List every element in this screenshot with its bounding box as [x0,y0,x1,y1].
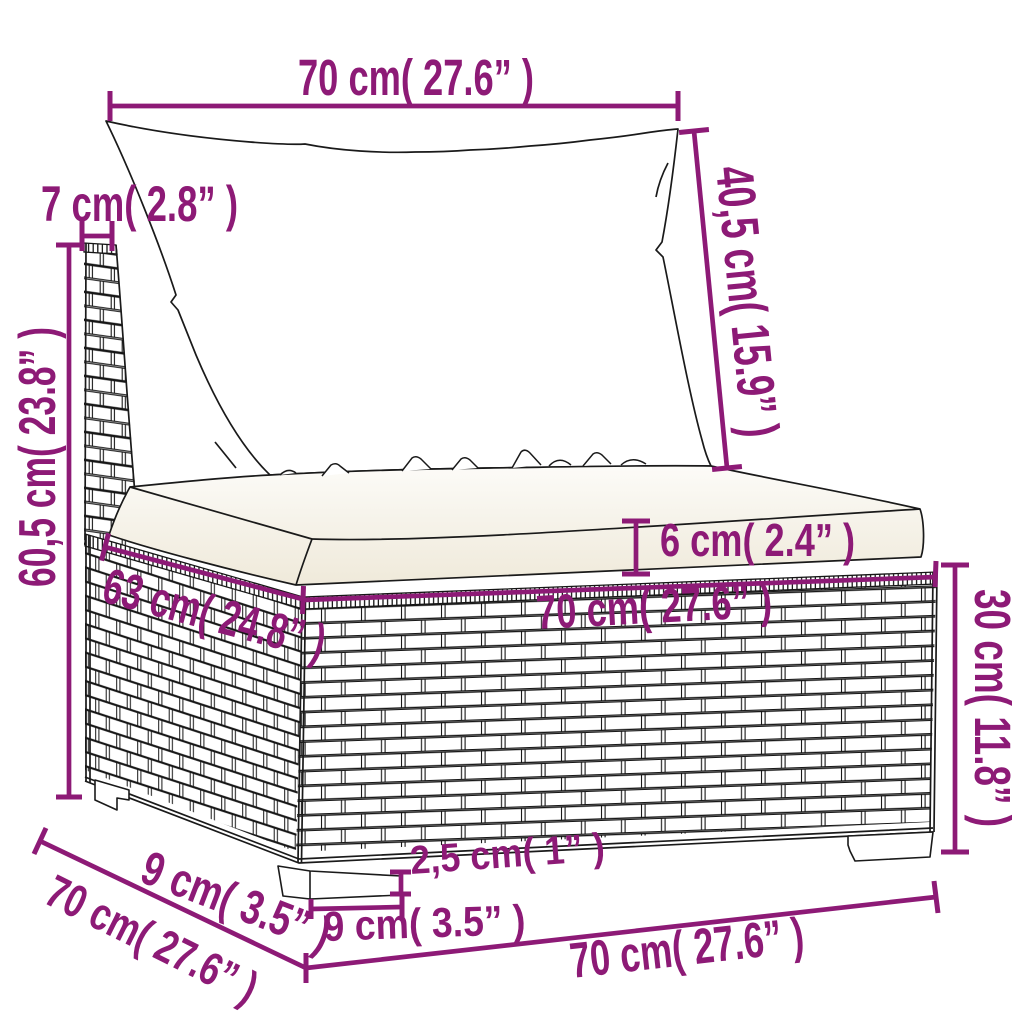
svg-text:7 cm( 2.8” ): 7 cm( 2.8” ) [41,176,238,232]
svg-text:6 cm( 2.4” ): 6 cm( 2.4” ) [660,514,855,566]
svg-text:9 cm( 3.5” ): 9 cm( 3.5” ) [323,896,527,950]
svg-text:60,5 cm( 23.8” ): 60,5 cm( 23.8” ) [9,327,67,587]
svg-text:30 cm( 11.8” ): 30 cm( 11.8” ) [964,589,1021,827]
svg-text:70 cm( 27.6” ): 70 cm( 27.6” ) [298,49,534,106]
